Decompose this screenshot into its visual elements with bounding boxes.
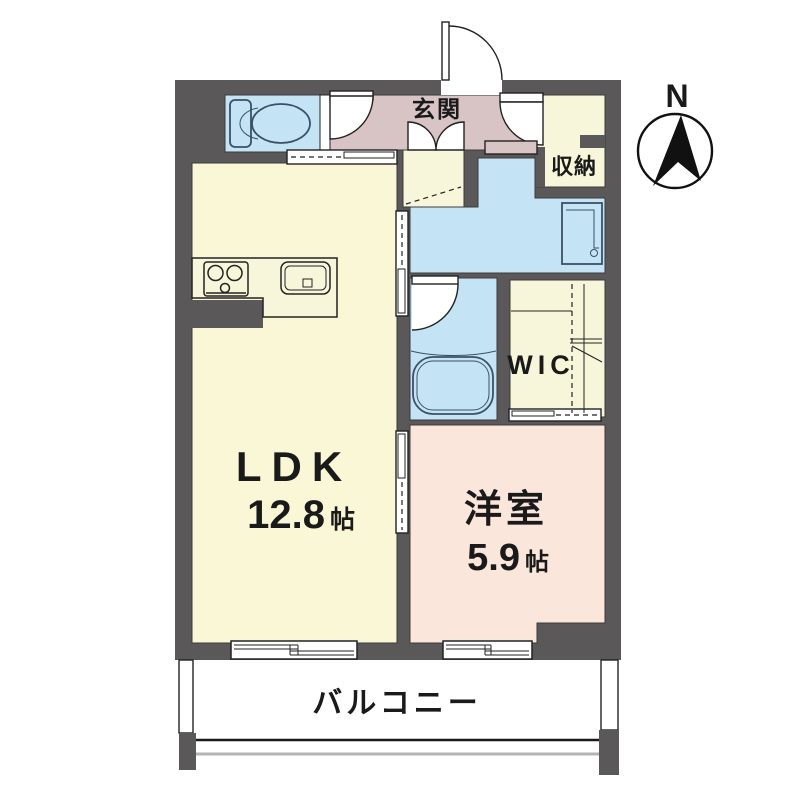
western-room-size-unit: 帖 xyxy=(525,549,549,576)
balcony-right-wall xyxy=(601,660,618,730)
entrance-closet xyxy=(403,150,464,207)
compass-north-label: N xyxy=(665,78,688,114)
storage-door-leaf xyxy=(500,93,543,102)
room-wic xyxy=(510,280,605,417)
floor-plan: N LDK 12.8 帖 洋室 5.9 帖 玄関 収納 WIC バルコニー xyxy=(0,0,800,800)
balcony-label: バルコニー xyxy=(312,687,481,720)
kitchen-partition-wall xyxy=(190,300,263,328)
ldk-label: LDK xyxy=(236,443,352,490)
room-western xyxy=(410,425,605,643)
washroom-threshold xyxy=(485,141,537,154)
ldk-sliding-panel xyxy=(344,152,394,158)
ldk-balcony-window xyxy=(231,641,357,659)
floor-plan-drawing: N LDK 12.8 帖 洋室 5.9 帖 玄関 収納 WIC バルコニー xyxy=(0,0,800,800)
storage-label: 収納 xyxy=(551,154,597,179)
room-ldk xyxy=(192,163,397,643)
front-door-opening xyxy=(441,78,502,95)
western-balcony-window xyxy=(443,641,532,659)
balcony-left-wall xyxy=(179,660,193,733)
room-toilet xyxy=(225,95,320,152)
ldk-size-unit: 帖 xyxy=(330,506,355,534)
toilet-doorway xyxy=(320,95,330,152)
entrance-label: 玄関 xyxy=(412,96,462,122)
bath-door-leaf xyxy=(412,276,458,284)
front-door-leaf xyxy=(442,22,449,80)
ldk-size-value: 12.8 xyxy=(247,493,325,537)
washroom-sliding-panel xyxy=(398,269,405,313)
balcony-right-pier xyxy=(599,730,619,775)
wic-sliding-panel xyxy=(512,411,554,416)
western-room-label: 洋室 xyxy=(464,488,548,531)
balcony-left-pier xyxy=(179,733,196,770)
western-room-size-value: 5.9 xyxy=(467,537,520,579)
wic-label: WIC xyxy=(507,350,574,380)
western-sliding-panel xyxy=(398,434,405,478)
storage-wall-notch xyxy=(580,135,605,148)
